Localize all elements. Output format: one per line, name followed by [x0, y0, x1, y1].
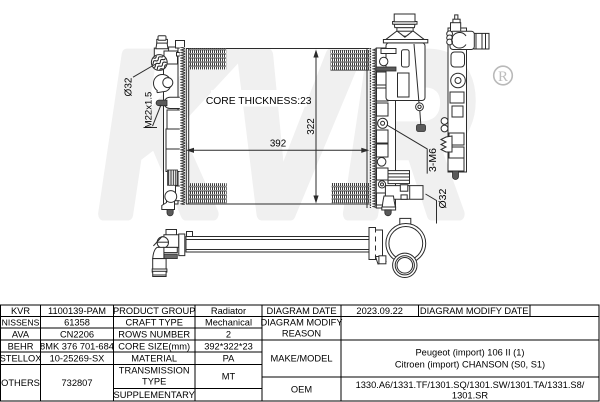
svg-text:TYPE: TYPE — [142, 377, 166, 387]
svg-text:BEHR: BEHR — [8, 342, 34, 352]
svg-text:PRODUCT GROUP: PRODUCT GROUP — [113, 306, 195, 316]
svg-text:M22x1.5: M22x1.5 — [144, 92, 155, 129]
svg-text:SUPPLEMENTARY: SUPPLEMENTARY — [114, 390, 195, 400]
svg-text:2023.09.22: 2023.09.22 — [356, 306, 403, 316]
svg-text:DIAGRAM DATE: DIAGRAM DATE — [266, 306, 336, 316]
svg-text:KVR: KVR — [11, 306, 30, 316]
svg-text:1100139-PAM: 1100139-PAM — [48, 306, 106, 316]
svg-text:NISSENS: NISSENS — [2, 318, 40, 328]
svg-text:ROWS NUMBER: ROWS NUMBER — [118, 330, 190, 340]
svg-text:REASON: REASON — [282, 329, 321, 339]
svg-text:OTHERS: OTHERS — [1, 378, 40, 388]
svg-text:61358: 61358 — [64, 318, 90, 328]
svg-text:CORE SIZE(mm): CORE SIZE(mm) — [118, 342, 190, 352]
svg-text:OEM: OEM — [291, 385, 312, 395]
svg-text:STELLOX: STELLOX — [0, 354, 41, 364]
svg-text:Citroen (import) CHANSON (S0,: Citroen (import) CHANSON (S0, S1) — [395, 360, 545, 370]
svg-text:R: R — [498, 69, 508, 85]
svg-text:MT: MT — [222, 372, 236, 382]
svg-text:Peugeot (import) 106 II (1): Peugeot (import) 106 II (1) — [415, 348, 524, 358]
svg-text:1330.A6/1331.TF/1301.SQ/1301.S: 1330.A6/1331.TF/1301.SQ/1301.SW/1301.TA/… — [356, 380, 585, 390]
svg-text:Ø32: Ø32 — [437, 189, 449, 209]
svg-text:TRANSMISSION: TRANSMISSION — [119, 366, 190, 376]
svg-text:8MK 376 701-684: 8MK 376 701-684 — [40, 342, 114, 352]
svg-text:1301.SR: 1301.SR — [452, 391, 488, 401]
svg-text:Mechanical: Mechanical — [205, 318, 252, 328]
svg-text:CRAFT TYPE: CRAFT TYPE — [125, 318, 183, 328]
svg-text:392: 392 — [270, 139, 286, 150]
svg-text:CN2206: CN2206 — [60, 330, 94, 340]
svg-text:322: 322 — [306, 118, 317, 134]
svg-text:MATERIAL: MATERIAL — [131, 354, 177, 364]
svg-text:Radiator: Radiator — [211, 306, 246, 316]
svg-text:10-25269-SX: 10-25269-SX — [50, 354, 105, 364]
svg-text:2: 2 — [226, 330, 231, 340]
svg-text:3-M6: 3-M6 — [427, 148, 439, 172]
svg-text:732807: 732807 — [61, 378, 92, 388]
svg-text:392*322*23: 392*322*23 — [204, 342, 253, 352]
svg-text:AVA: AVA — [12, 330, 30, 340]
svg-text:DIAGRAM MODIFY: DIAGRAM MODIFY — [260, 318, 342, 328]
svg-text:CORE THICKNESS:23: CORE THICKNESS:23 — [206, 96, 312, 107]
svg-text:DIAGRAM MODIFY DATE: DIAGRAM MODIFY DATE — [420, 306, 529, 316]
svg-text:Ø32: Ø32 — [124, 77, 135, 96]
svg-text:PA: PA — [223, 354, 236, 364]
svg-text:MAKE/MODEL: MAKE/MODEL — [271, 354, 333, 364]
